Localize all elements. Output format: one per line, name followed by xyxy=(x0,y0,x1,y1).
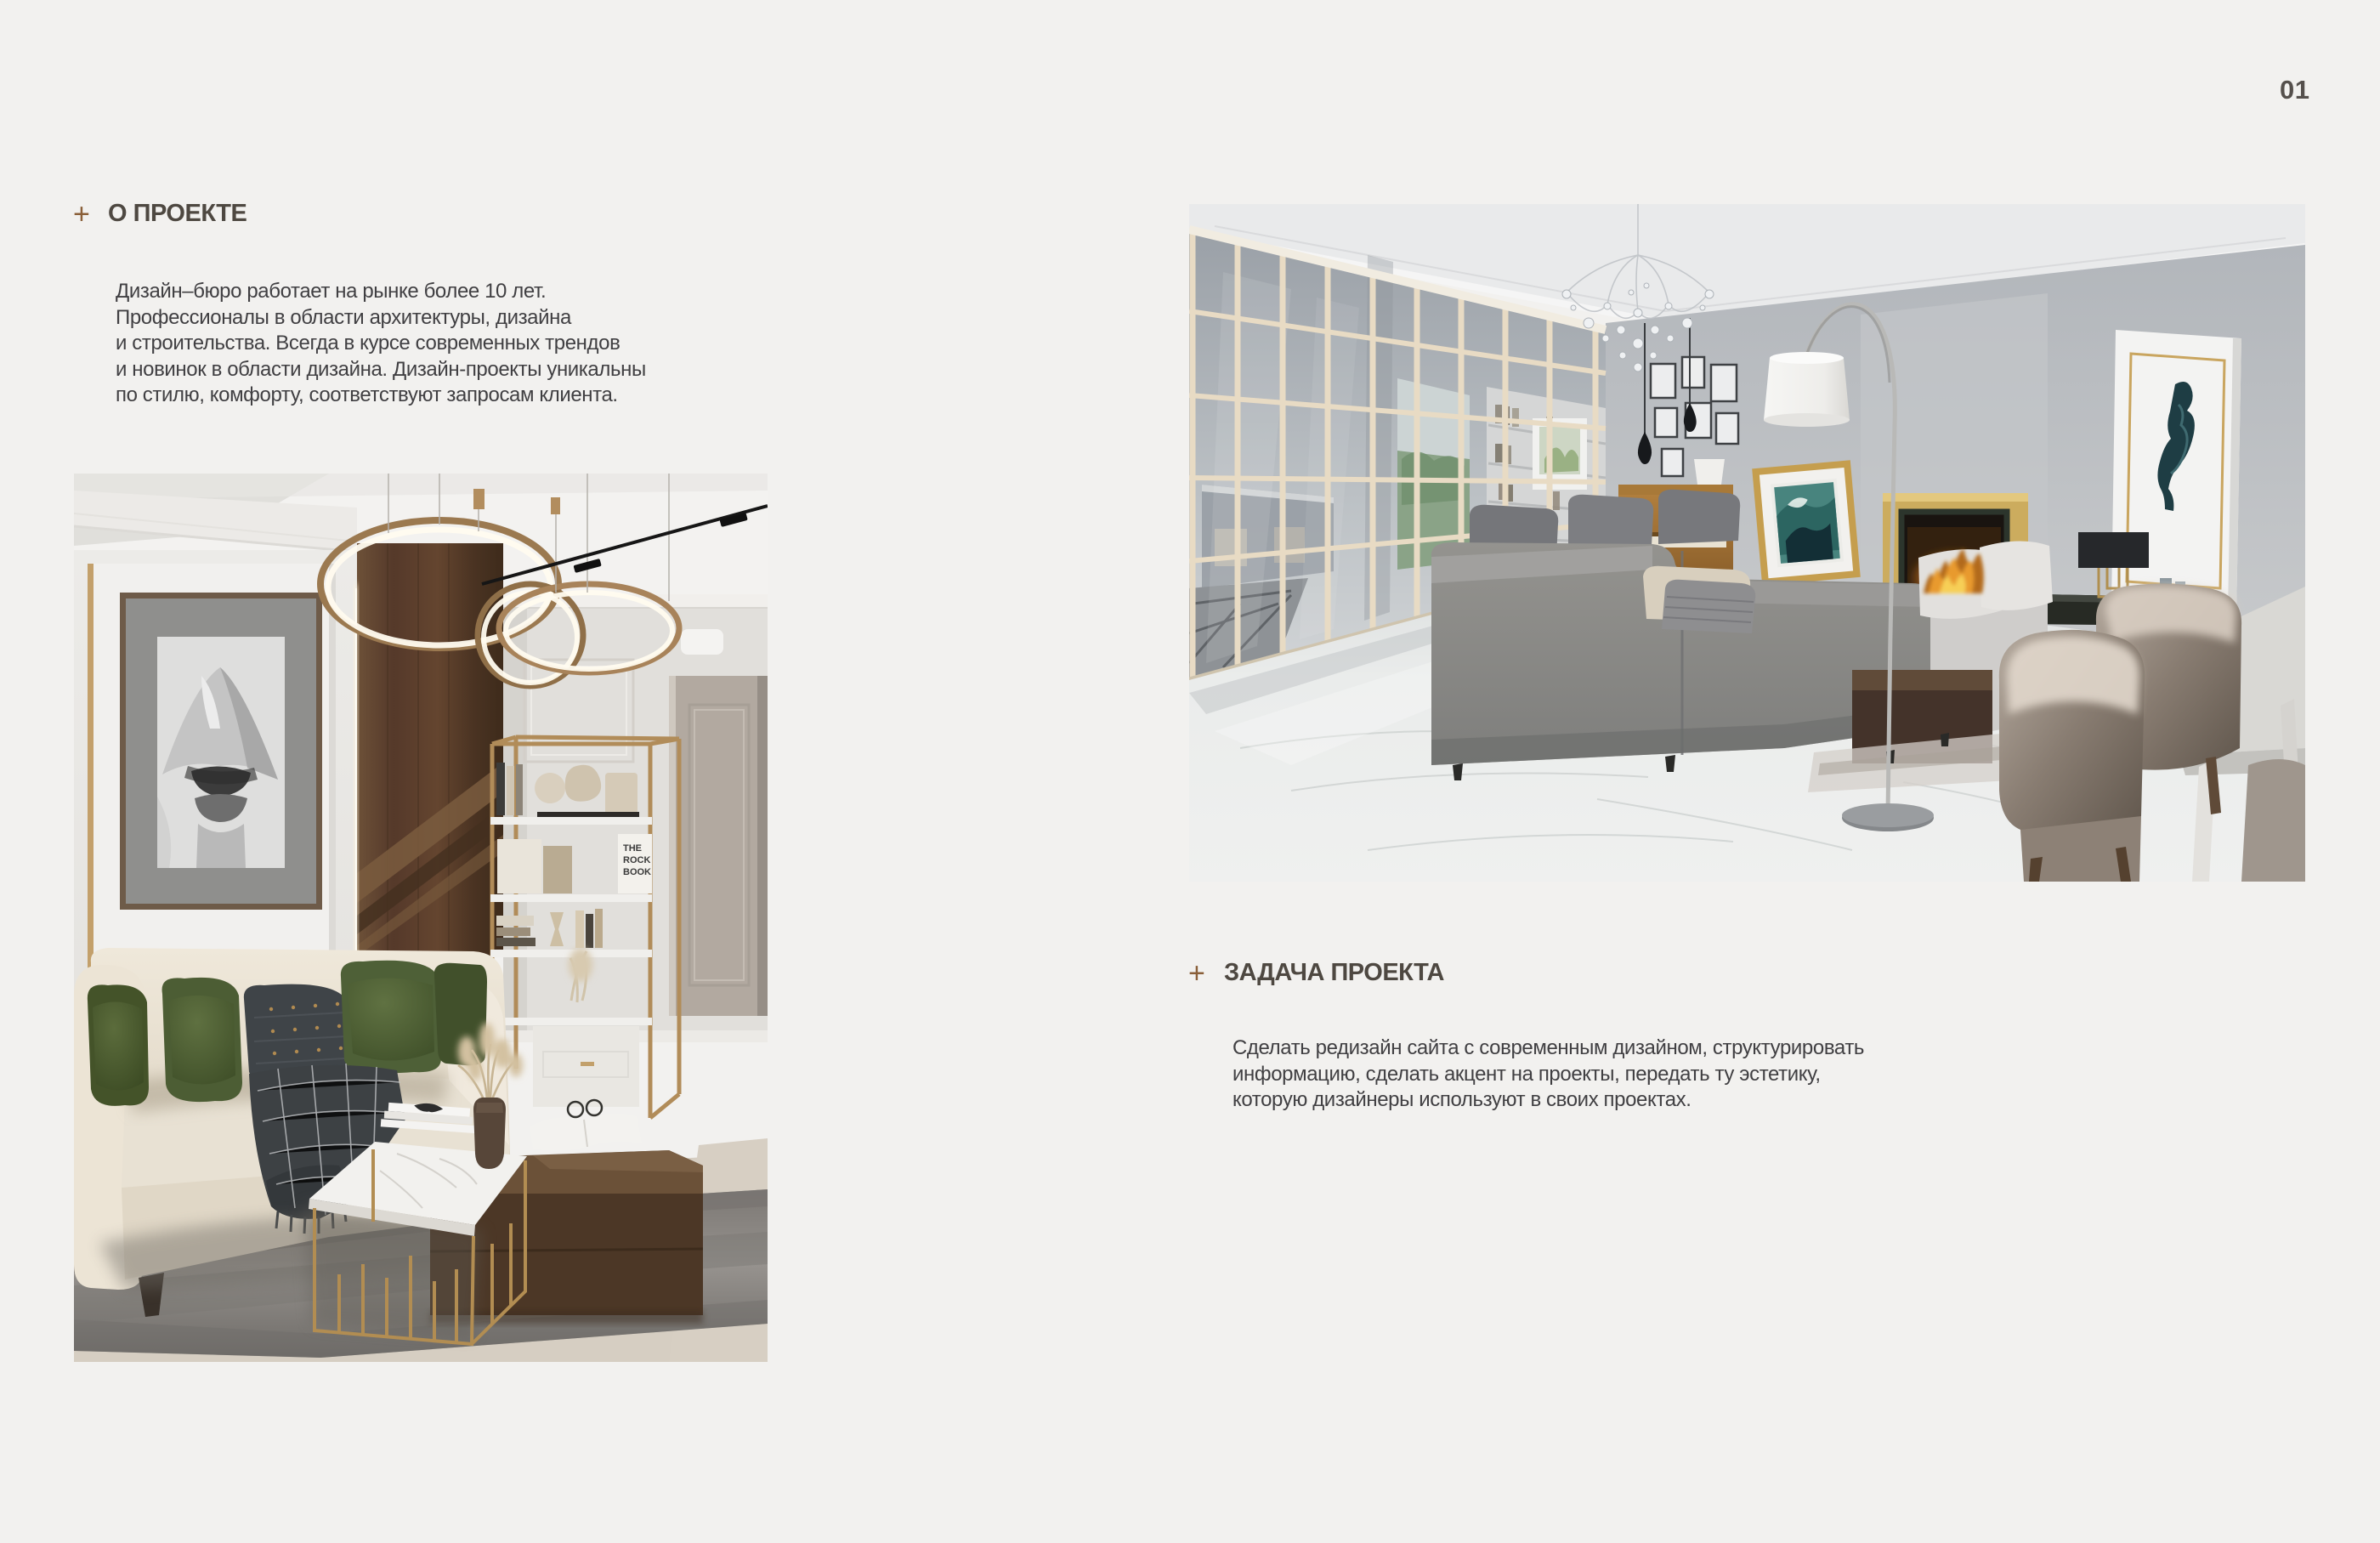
svg-text:THE: THE xyxy=(623,843,642,854)
svg-text:BOOK: BOOK xyxy=(623,867,651,877)
svg-text:ROCK: ROCK xyxy=(623,855,650,865)
